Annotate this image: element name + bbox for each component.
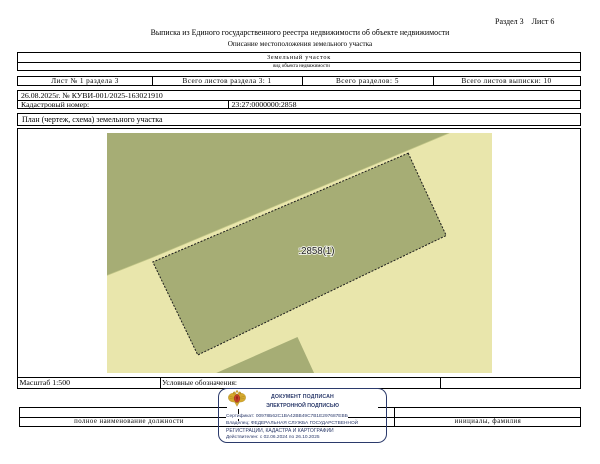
svg-text::2858(1): :2858(1) xyxy=(298,246,334,257)
